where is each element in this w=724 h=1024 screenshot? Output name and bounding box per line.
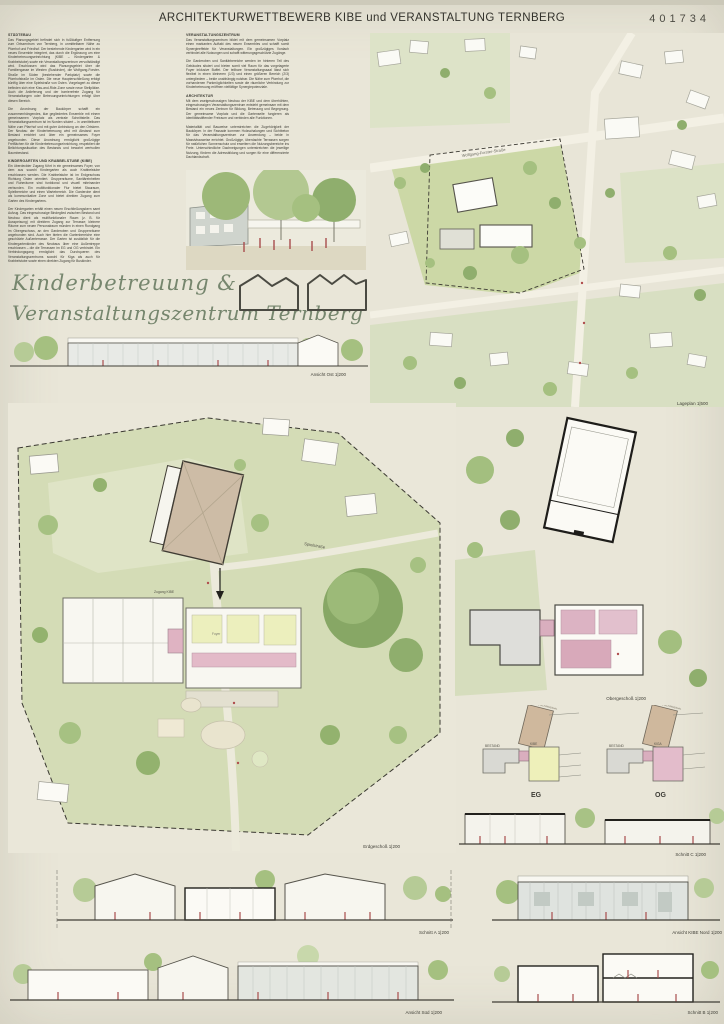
obergeschoss-label: Obergeschoß 1|200 [606, 696, 646, 701]
erdgeschoss-label: Erdgeschoß 1|200 [363, 844, 400, 849]
paragraph: Die Garderoben und Sanitärbereiche werde… [186, 59, 289, 89]
ansicht-kibe-nord-label: Ansicht KIBE Nord 1|200 [672, 930, 722, 935]
competition-board: ARCHITEKTURWETTBEWERB KIBE und VERANSTAL… [0, 0, 724, 1024]
green-area [370, 33, 510, 128]
north-elevation [488, 862, 724, 936]
og-caption: OG [655, 792, 666, 799]
ground-floor-plan: Spielstraße Zugang KIBE Foyer [8, 403, 456, 853]
lageplan-label: Lageplan 1|500 [677, 401, 708, 406]
paragraph: Die Anordnung der Baukörper schafft ein … [8, 107, 100, 155]
paragraph: Das Planungsgebiet befindet sich in fußl… [8, 38, 100, 103]
paragraph: Der Kindergarten erhält einen neuen Ersc… [8, 207, 100, 263]
ansicht-sued-drawing: Ansicht Süd 1|200 [8, 940, 456, 1016]
tree [494, 966, 510, 982]
paragraph: Materialität und Bauweise unterstreichen… [186, 125, 289, 160]
lageplan-drawing: Wolfgang-Forster-Straße Lageplan 1|500 [370, 33, 724, 407]
schnitt-b-drawing: Schnitt B 1|200 [488, 940, 724, 1016]
section-b [488, 940, 724, 1016]
ansicht-ost-label: Ansicht Ost 1|200 [311, 372, 346, 377]
roof-band [518, 876, 688, 882]
tree [694, 878, 714, 898]
paragraph: Ein überdeckter Zugang führt in ein geme… [8, 164, 100, 203]
text-column-left: STÄDTEBAU Das Planungsgebiet befindet si… [8, 33, 100, 268]
schnitt-c-label: Schnitt C 1|200 [675, 852, 706, 857]
roof-band [238, 962, 418, 966]
heading-kibe: KINDERGARTEN UND KRABBELSTUBE (KIBE) [8, 159, 100, 163]
erdgeschoss-drawing: Spielstraße Zugang KIBE Foyer Erdgeschoß… [8, 403, 456, 853]
ansicht-ost-drawing: Ansicht Ost 1|200 [8, 326, 370, 374]
section-low [518, 966, 598, 1002]
project-number: 401734 [649, 13, 710, 25]
schnitt-a-label: Schnitt A 1|200 [419, 930, 449, 935]
eg-caption: EG [531, 792, 542, 799]
schnitt-b-label: Schnitt B 1|200 [688, 1010, 718, 1015]
rendering-sketch [186, 170, 366, 270]
event-hall-plan [544, 418, 636, 542]
scan-edge [0, 0, 724, 5]
bestand-label: BESTAND [485, 744, 501, 748]
schema-og: VERANSTALTUNGSSAAL BESTAND KIGA OG [607, 705, 705, 799]
tree [496, 880, 520, 904]
courtyard-ground [186, 246, 366, 270]
kiga-label: KIGA [654, 742, 662, 746]
gable-building [158, 956, 228, 1000]
paragraph: Mit dem zweigeschossigen Neubau der KIBE… [186, 99, 289, 121]
heading-architektur: ARCHITEKTUR [186, 94, 289, 98]
east-elevation [8, 326, 370, 374]
schema-diagrams: VERANSTALTUNGSSAAL BESTAND KIBE EG VERAN… [455, 705, 724, 801]
ansicht-kibe-nord-drawing: Ansicht KIBE Nord 1|200 [488, 862, 724, 936]
foyer-label: Foyer [212, 632, 221, 636]
obergeschoss-drawing: Obergeschoß 1|200 [455, 410, 724, 702]
schnitt-c-drawing: Schnitt C 1|200 [455, 800, 724, 858]
ansicht-sued-label: Ansicht Süd 1|200 [406, 1010, 442, 1015]
low-building [28, 970, 148, 1000]
building-pictogram-icon [238, 270, 370, 312]
roof-band [68, 338, 298, 343]
section-a [55, 862, 455, 936]
section-c [455, 800, 724, 858]
tree [575, 808, 595, 828]
gable-section [95, 874, 175, 920]
heading-veranstaltungszentrum: VERANSTALTUNGSZENTRUM [186, 33, 289, 37]
schema-eg: VERANSTALTUNGSSAAL BESTAND KIBE EG [483, 705, 581, 799]
tree [709, 808, 724, 824]
board-title: ARCHITEKTURWETTBEWERB KIBE und VERANSTAL… [0, 12, 724, 24]
zugang-kibe-label: Zugang KIBE [154, 590, 175, 594]
text-column-right: VERANSTALTUNGSZENTRUM Das Veranstaltungs… [186, 33, 289, 163]
eg-og-schemes: VERANSTALTUNGSSAAL BESTAND KIBE EG VERAN… [455, 705, 724, 801]
roofline-pictograms [238, 270, 370, 312]
tree [701, 961, 719, 979]
perspective-rendering [186, 170, 366, 270]
paragraph: Das Veranstaltungszentrum bildet mit dem… [186, 38, 289, 55]
heading-staedtebau: STÄDTEBAU [8, 33, 100, 37]
bestand-kindergarten-plan [63, 598, 183, 683]
section-building [605, 820, 710, 844]
south-elevation [8, 940, 456, 1016]
bestand-label: BESTAND [609, 744, 625, 748]
kibe-label: KIBE [530, 742, 537, 746]
schnitt-a-drawing: Schnitt A 1|200 [55, 862, 455, 936]
lageplan-map: Wolfgang-Forster-Straße [370, 33, 724, 407]
upper-floor-plan [455, 410, 724, 702]
